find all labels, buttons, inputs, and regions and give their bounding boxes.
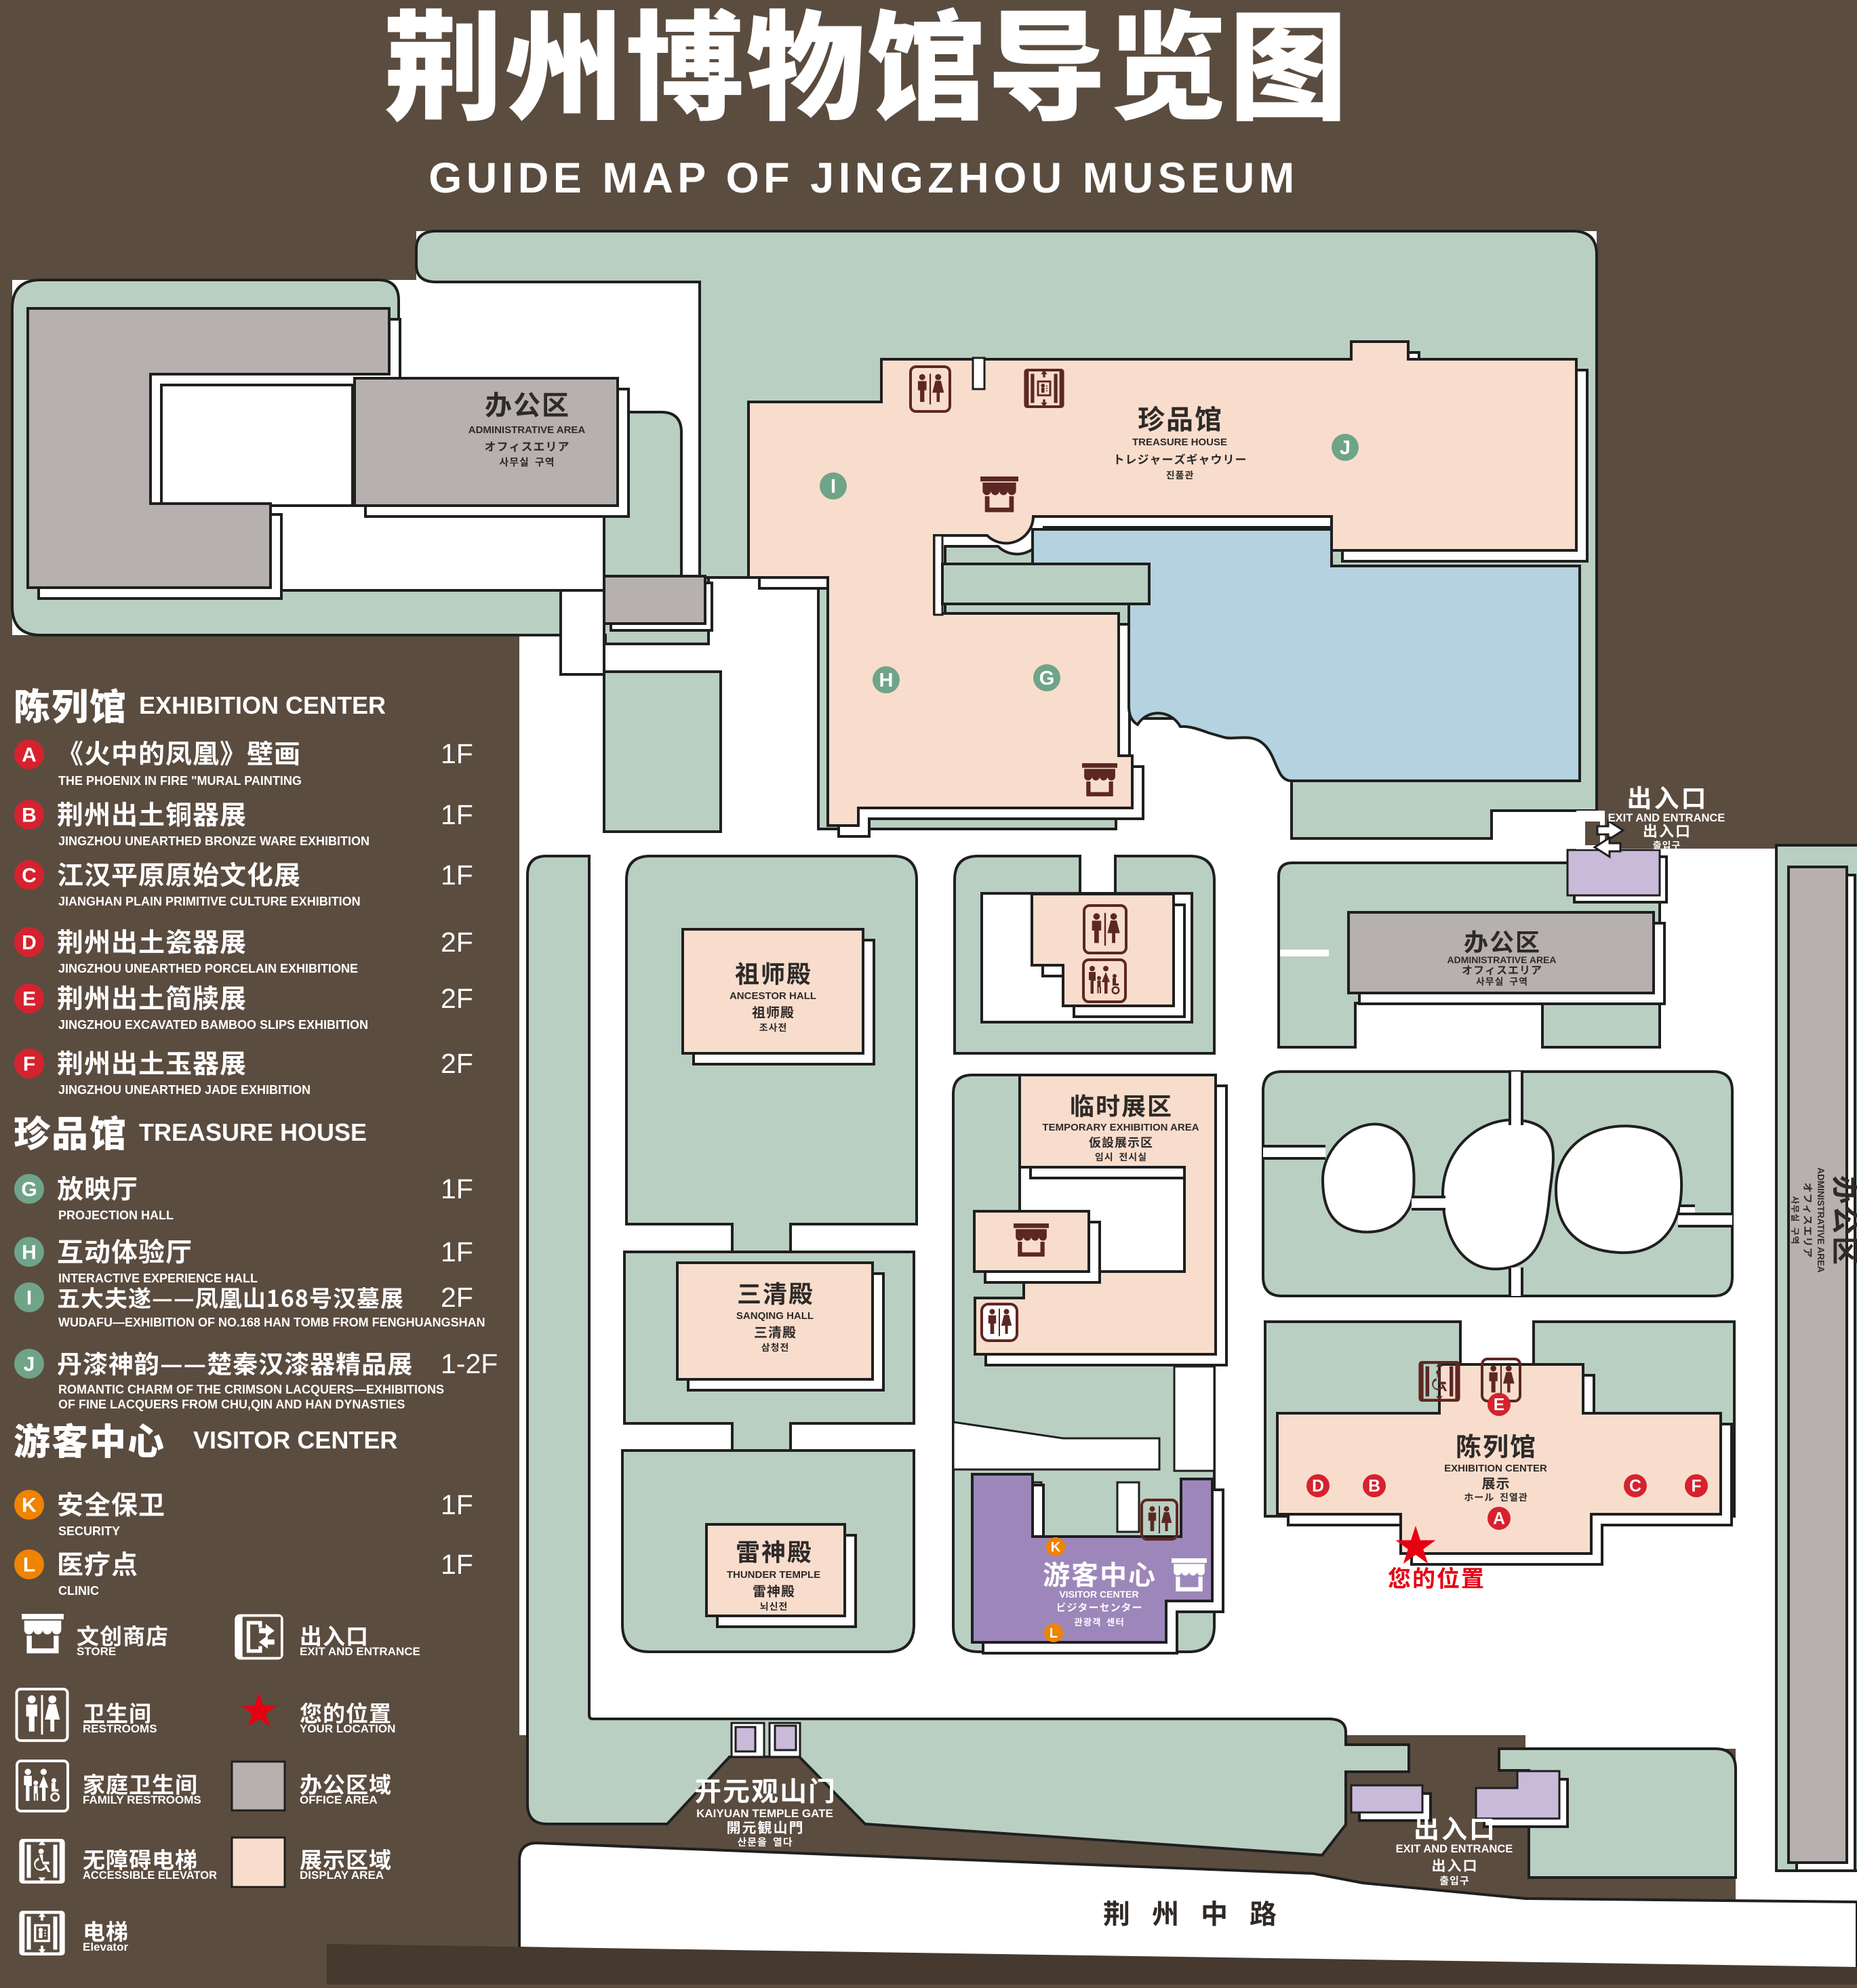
svg-text:1F: 1F [441, 859, 473, 891]
svg-text:1F: 1F [441, 1549, 473, 1580]
svg-text:1-2F: 1-2F [441, 1348, 498, 1379]
svg-text:TREASURE HOUSE: TREASURE HOUSE [139, 1118, 367, 1146]
svg-text:ACCESSIBLE ELEVATOR: ACCESSIBLE ELEVATOR [83, 1869, 217, 1882]
svg-text:ADMINISTRATIVE AREA: ADMINISTRATIVE AREA [468, 424, 586, 436]
svg-text:1F: 1F [441, 1236, 473, 1267]
svg-text:B: B [1368, 1478, 1380, 1496]
svg-text:ADMINISTRATIVE AREA: ADMINISTRATIVE AREA [1447, 954, 1557, 965]
svg-text:L: L [23, 1554, 35, 1577]
svg-text:J: J [24, 1354, 35, 1376]
svg-text:EXHIBITION CENTER: EXHIBITION CENTER [1444, 1463, 1547, 1474]
svg-text:ANCESTOR HALL: ANCESTOR HALL [730, 990, 816, 1002]
svg-text:J: J [1340, 437, 1351, 459]
svg-text:DISPLAY AREA: DISPLAY AREA [300, 1869, 384, 1882]
svg-text:1F: 1F [441, 1489, 473, 1520]
svg-text:K: K [1051, 1540, 1061, 1555]
svg-text:F: F [23, 1053, 35, 1076]
svg-text:RESTROOMS: RESTROOMS [83, 1722, 157, 1735]
svg-text:TEMPORARY EXHIBITION AREA: TEMPORARY EXHIBITION AREA [1042, 1122, 1199, 1133]
svg-text:WUDAFU—EXHIBITION OF NO.168 HA: WUDAFU—EXHIBITION OF NO.168 HAN TOMB FRO… [58, 1316, 485, 1329]
svg-text:EXIT AND ENTRANCE: EXIT AND ENTRANCE [1396, 1843, 1513, 1855]
svg-text:STORE: STORE [77, 1645, 116, 1658]
svg-text:G: G [21, 1179, 37, 1201]
svg-text:K: K [22, 1495, 37, 1517]
svg-text:YOUR LOCATION: YOUR LOCATION [300, 1722, 395, 1735]
svg-text:I: I [831, 476, 836, 498]
svg-text:JINGZHOU UNEARTHED JADE EXHIBI: JINGZHOU UNEARTHED JADE EXHIBITION [58, 1083, 311, 1097]
svg-text:EXIT AND ENTRANCE: EXIT AND ENTRANCE [300, 1645, 420, 1658]
svg-text:OF FINE LACQUERS FROM CHU,QIN: OF FINE LACQUERS FROM CHU,QIN AND HAN DY… [58, 1398, 405, 1411]
svg-text:H: H [879, 670, 894, 691]
svg-text:2F: 2F [441, 983, 473, 1014]
svg-text:CLINIC: CLINIC [58, 1584, 99, 1598]
svg-text:JINGZHOU EXCAVATED BAMBOO SLIP: JINGZHOU EXCAVATED BAMBOO SLIPS EXHIBITI… [58, 1018, 368, 1032]
svg-text:E: E [1494, 1396, 1504, 1415]
svg-text:VISITOR CENTER: VISITOR CENTER [1059, 1589, 1138, 1600]
svg-text:H: H [22, 1242, 37, 1264]
svg-text:JINGZHOU UNEARTHED BRONZE WARE: JINGZHOU UNEARTHED BRONZE WARE EXHIBITIO… [58, 834, 370, 848]
svg-text:1F: 1F [441, 1173, 473, 1204]
svg-text:I: I [26, 1287, 32, 1310]
svg-text:INTERACTIVE EXPERIENCE HALL: INTERACTIVE EXPERIENCE HALL [58, 1272, 258, 1285]
svg-text:ADMINISTRATIVE AREA: ADMINISTRATIVE AREA [1816, 1167, 1826, 1273]
svg-text:F: F [1691, 1478, 1701, 1496]
svg-text:THUNDER TEMPLE: THUNDER TEMPLE [727, 1569, 820, 1581]
svg-text:C: C [22, 865, 37, 887]
svg-text:C: C [1629, 1478, 1641, 1496]
svg-text:FAMILY RESTROOMS: FAMILY RESTROOMS [83, 1793, 201, 1806]
svg-text:VISITOR CENTER: VISITOR CENTER [193, 1426, 397, 1454]
svg-text:D: D [1312, 1478, 1324, 1496]
svg-text:A: A [1493, 1510, 1505, 1528]
svg-text:TREASURE HOUSE: TREASURE HOUSE [1132, 437, 1227, 448]
svg-text:2F: 2F [441, 1048, 473, 1079]
svg-text:SANQING HALL: SANQING HALL [736, 1310, 814, 1322]
svg-text:A: A [22, 744, 37, 767]
svg-text:G: G [1039, 668, 1055, 689]
svg-text:1F: 1F [441, 738, 473, 769]
svg-text:GUIDE MAP OF JINGZHOU MUSEUM: GUIDE MAP OF JINGZHOU MUSEUM [428, 155, 1298, 202]
svg-text:EXHIBITION CENTER: EXHIBITION CENTER [139, 691, 386, 719]
svg-text:L: L [1050, 1626, 1058, 1641]
svg-text:EXIT AND ENTRANCE: EXIT AND ENTRANCE [1608, 812, 1725, 824]
svg-text:SECURITY: SECURITY [58, 1524, 120, 1538]
svg-text:JIANGHAN PLAIN PRIMITIVE CULTU: JIANGHAN PLAIN PRIMITIVE CULTURE EXHIBIT… [58, 895, 361, 908]
svg-text:THE PHOENIX IN FIRE "MURAL PAI: THE PHOENIX IN FIRE "MURAL PAINTING [58, 774, 302, 788]
svg-text:2F: 2F [441, 1282, 473, 1313]
svg-text:D: D [22, 932, 37, 954]
svg-text:KAIYUAN TEMPLE GATE: KAIYUAN TEMPLE GATE [696, 1807, 833, 1820]
svg-text:Elevator: Elevator [83, 1941, 128, 1953]
svg-text:E: E [22, 988, 36, 1011]
svg-text:JINGZHOU UNEARTHED PORCELAIN E: JINGZHOU UNEARTHED PORCELAIN EXHIBITIONE [58, 962, 358, 975]
svg-text:2F: 2F [441, 927, 473, 958]
svg-text:PROJECTION HALL: PROJECTION HALL [58, 1209, 174, 1222]
svg-text:ROMANTIC CHARM OF THE CRIMSON: ROMANTIC CHARM OF THE CRIMSON LACQUERS—E… [58, 1383, 444, 1396]
svg-text:B: B [22, 805, 37, 827]
svg-text:1F: 1F [441, 799, 473, 830]
svg-text:OFFICE AREA: OFFICE AREA [300, 1793, 378, 1806]
